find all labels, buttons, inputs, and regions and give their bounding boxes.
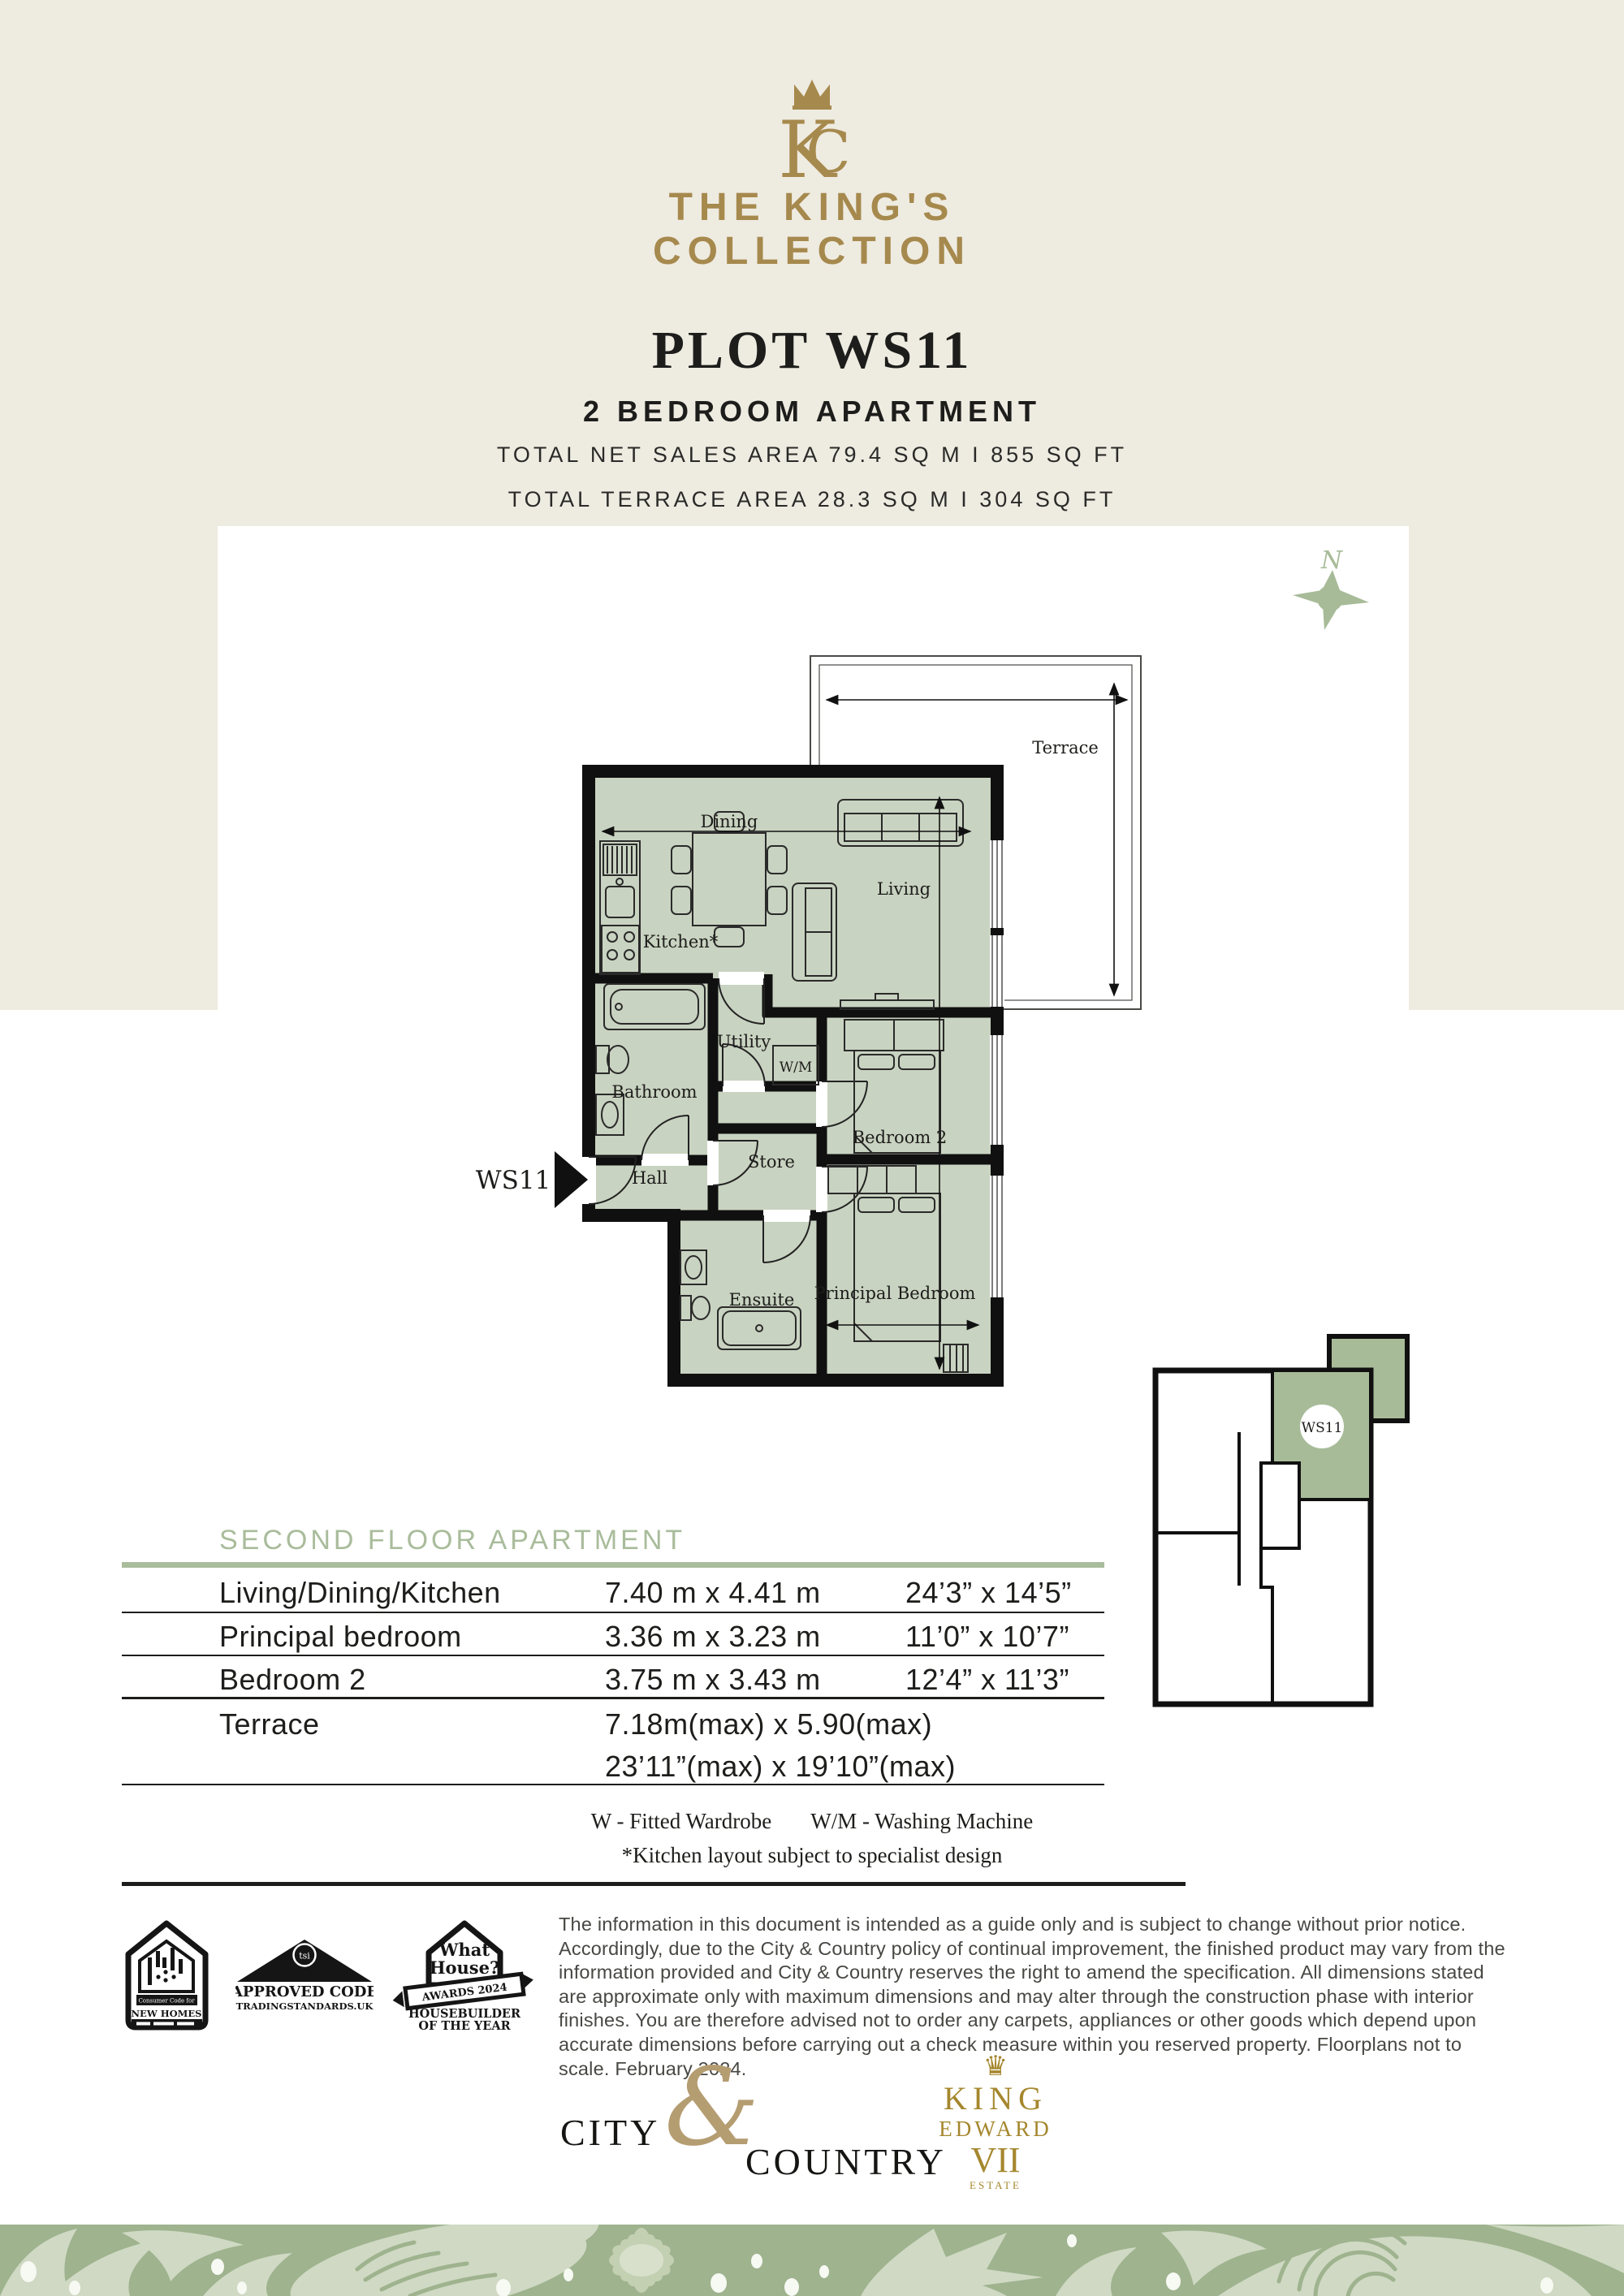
king-edward-vii-logo: ♛ KING EDWARD VII ESTATE: [939, 2052, 1052, 2191]
row2-metric: 3.36 m x 3.23 m: [605, 1620, 821, 1654]
svg-text:C: C: [806, 118, 850, 182]
brand-line1: THE KING'S: [0, 185, 1624, 230]
ke-vii: VII: [939, 2142, 1052, 2179]
kitchen-note: *Kitchen layout subject to specialist de…: [455, 1843, 1169, 1868]
consumer-code-new-homes-badge: Consumer Code for NEW HOMES: [120, 1917, 214, 2035]
row2-name: Principal bedroom: [219, 1620, 462, 1654]
room-label-store: Store: [748, 1152, 795, 1172]
terrace-row-rule: [122, 1784, 1104, 1785]
terrace-row-metric1: 7.18m(max) x 5.90(max): [605, 1707, 932, 1741]
room-label-bedroom2: Bedroom 2: [853, 1128, 948, 1147]
brand-line2: COLLECTION: [0, 229, 1624, 274]
room-label-dining: Dining: [701, 812, 758, 831]
table-bottom-rule: [122, 1882, 1186, 1886]
windows: [990, 840, 1004, 1297]
tsi-line1: APPROVED CODE: [235, 1983, 374, 2000]
tsi-line2: TRADINGSTANDARDS.UK: [236, 2000, 374, 2012]
room-label-wm: W/M: [780, 1060, 813, 1076]
locator-plan: WS11: [1155, 1336, 1407, 1704]
crown-icon: [794, 80, 830, 106]
legend-note: W - Fitted WardrobeW/M - Washing Machine: [455, 1809, 1169, 1834]
plot-subtitle: 2 BEDROOM APARTMENT: [0, 395, 1624, 429]
tsi-approved-code-badge: tsi APPROVED CODE TRADINGSTANDARDS.UK: [235, 1938, 374, 2013]
table-heading: SECOND FLOOR APARTMENT: [219, 1525, 685, 1556]
room-label-principal-bedroom: Principal Bedroom: [814, 1284, 976, 1303]
row1-imperial: 24’3” x 14’5”: [905, 1576, 1072, 1610]
table-heading-rule: [122, 1562, 1104, 1568]
terrace-row-metric2: 23’11”(max) x 19’10”(max): [605, 1750, 956, 1784]
kings-collection-monogram-icon: K C: [747, 75, 877, 182]
net-sales-area: TOTAL NET SALES AREA 79.4 SQ M I 855 SQ …: [0, 442, 1624, 468]
ke-edward: EDWARD: [939, 2116, 1052, 2142]
unit-entry-label: WS11: [476, 1166, 551, 1195]
compass-icon: N: [1293, 546, 1369, 630]
room-label-utility: Utility: [717, 1032, 771, 1051]
room-label-hall: Hall: [632, 1168, 668, 1188]
legend-wardrobe: W - Fitted Wardrobe: [591, 1809, 772, 1833]
brochure-page: K C THE KING'S COLLECTION PLOT WS11 2 BE…: [0, 0, 1624, 2296]
compass-north-label: N: [1320, 546, 1344, 575]
ke-king: KING: [939, 2082, 1052, 2116]
plot-title: PLOT WS11: [0, 320, 1624, 382]
room-label-bathroom: Bathroom: [611, 1082, 697, 1102]
room-label-ensuite: Ensuite: [729, 1290, 795, 1310]
new-homes-main-text: NEW HOMES: [132, 2008, 202, 2019]
tsi-circle-text: tsi: [299, 1951, 310, 1962]
row1-name: Living/Dining/Kitchen: [219, 1576, 501, 1610]
ke-crown-icon: ♛: [939, 2052, 1052, 2082]
right-margin-band: [1409, 526, 1624, 1010]
row2-rule: [122, 1655, 1104, 1656]
what-house-award-badge: What House? AWARDS 2024 HOUSEBUILDER OF …: [391, 1917, 536, 2032]
floral-pattern-band: [0, 2225, 1624, 2296]
row3-name: Bedroom 2: [219, 1663, 366, 1697]
terrace-row-name: Terrace: [219, 1707, 320, 1741]
room-label-terrace: Terrace: [1032, 738, 1099, 757]
locator-unit-label: WS11: [1302, 1420, 1343, 1436]
left-margin-band: [0, 526, 218, 1010]
row3-metric: 3.75 m x 3.43 m: [605, 1663, 821, 1697]
room-label-kitchen: Kitchen*: [643, 932, 719, 952]
legend-washing-machine: W/M - Washing Machine: [810, 1809, 1033, 1833]
city-and-country-logo: CITY & COUNTRY: [560, 2072, 950, 2186]
new-homes-small-text: Consumer Code for: [138, 1998, 195, 2005]
row1-metric: 7.40 m x 4.41 m: [605, 1576, 821, 1610]
row1-rule: [122, 1612, 1104, 1613]
floorplan: N Terrace: [455, 487, 1429, 1746]
what-house-line2: House?: [430, 1957, 500, 1978]
city-word: CITY: [560, 2111, 660, 2154]
ke-estate: ESTATE: [939, 2179, 1052, 2191]
row3-imperial: 12’4” x 11’3”: [905, 1663, 1069, 1697]
country-word: COUNTRY: [745, 2140, 947, 2183]
what-house-line4: OF THE YEAR: [418, 2019, 511, 2032]
row2-imperial: 11’0” x 10’7”: [905, 1620, 1069, 1654]
room-label-living: Living: [877, 879, 931, 899]
row3-rule: [122, 1697, 1104, 1699]
